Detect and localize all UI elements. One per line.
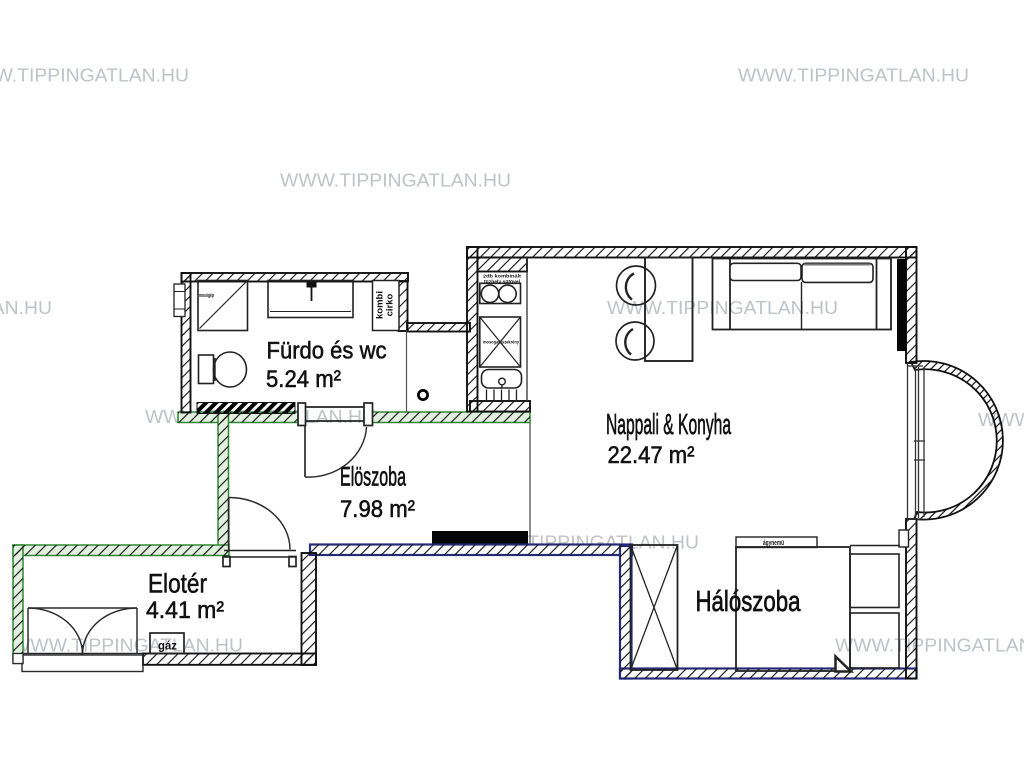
svg-text:WWW.TIPPINGATLAN.HU: WWW.TIPPINGATLAN.HU [738,66,969,86]
svg-text:Hálószoba: Hálószoba [696,586,802,618]
svg-text:WWW.TIPPINGATLAN.HU: WWW.TIPPINGATLAN.HU [280,171,511,191]
svg-text:2db kombinált: 2db kombinált [483,274,521,280]
svg-text:mosógép: mosógép [199,293,214,299]
svg-text:Elöszoba: Elöszoba [340,462,407,492]
svg-text:mosogatószekrény: mosogatószekrény [483,340,519,346]
svg-text:ágynemü: ágynemü [763,538,784,547]
svg-text:WWW.TIPPINGATLAN.HU: WWW.TIPPINGATLAN.HU [0,66,189,86]
svg-text:Fürdo és wc: Fürdo és wc [267,338,387,365]
svg-text:5.24 m²: 5.24 m² [266,366,341,393]
svg-text:22.47 m²: 22.47 m² [608,442,695,469]
svg-text:tüzhely sütövel: tüzhely sütövel [484,279,520,285]
svg-text:gáz: gáz [158,641,177,653]
svg-text:WWW.TIPPINGATLAN.HU: WWW.TIPPINGATLAN.HU [12,636,243,656]
svg-text:Elotér: Elotér [148,569,207,599]
svg-text:7.98 m²: 7.98 m² [340,496,415,523]
svg-text:WWW.TIPPINGATLAN.HU: WWW.TIPPINGATLAN.HU [607,298,838,318]
svg-text:WWW.TIPPINGATLAN.HU: WWW.TIPPINGATLAN.HU [835,636,1024,656]
svg-text:4.41 m²: 4.41 m² [146,597,224,624]
svg-text:WWW.TIPPINGATLAN.HU: WWW.TIPPINGATLAN.HU [0,298,52,318]
svg-text:Nappali & Konyha: Nappali & Konyha [606,409,731,441]
svg-text:cirko: cirko [385,293,396,316]
